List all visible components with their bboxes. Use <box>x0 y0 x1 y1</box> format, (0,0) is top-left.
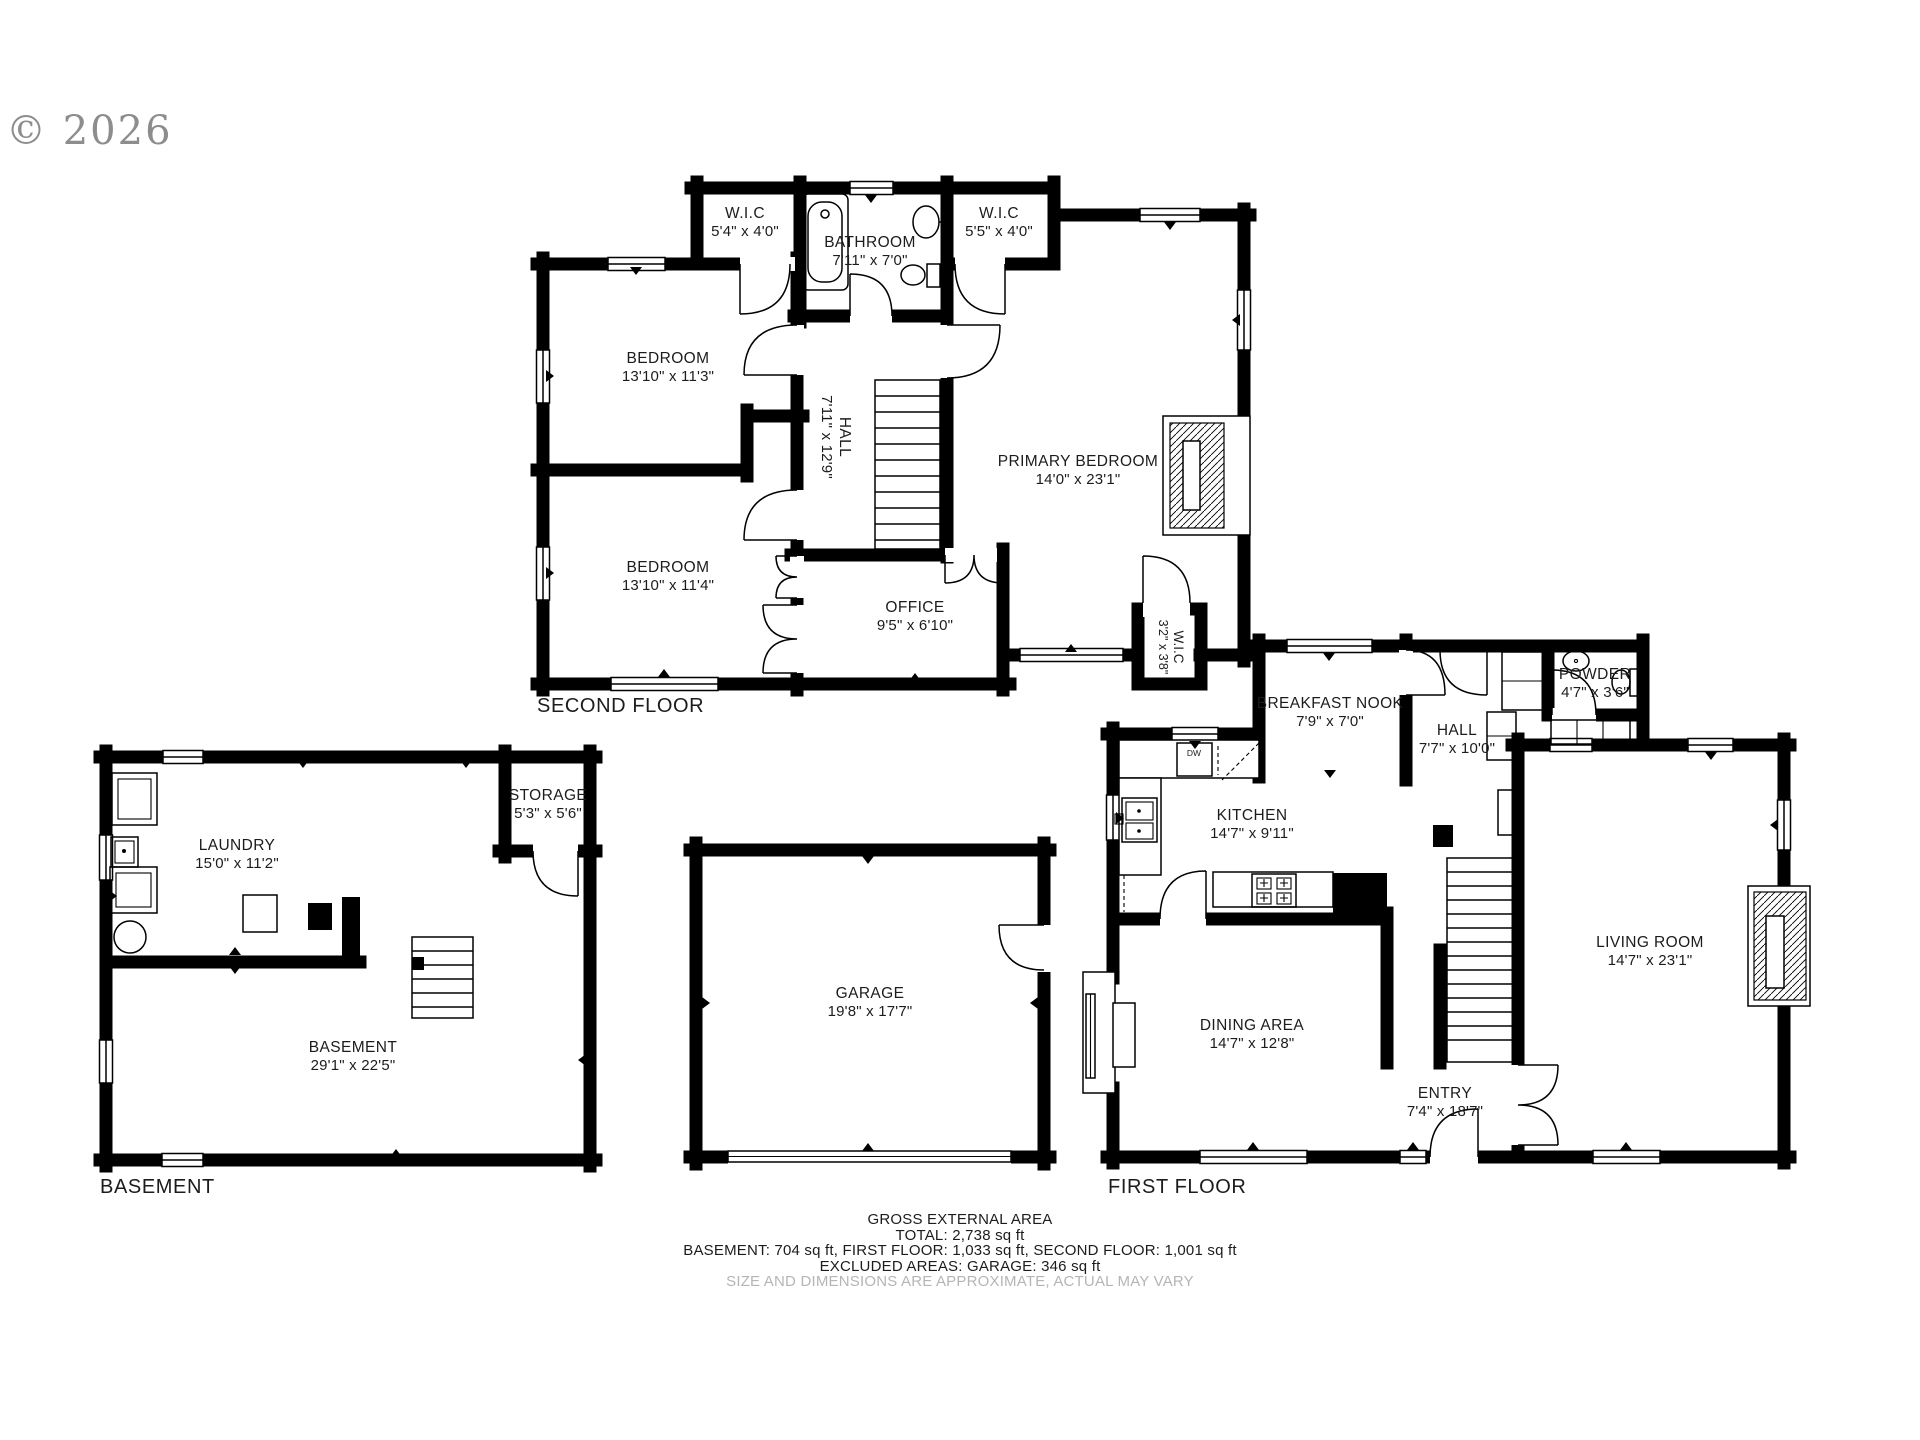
fireplace-primary-bedroom <box>1163 416 1250 535</box>
room-label-powder: POWDER <box>1559 666 1631 683</box>
room-label-wic-right: W.I.C <box>979 205 1019 222</box>
floorplan-page: © 2026 <box>0 0 1920 1440</box>
room-label-breakfast-nook: BREAKFAST NOOK <box>1257 695 1404 712</box>
room-dims-bedroom2: 13'10" x 11'4" <box>622 577 714 594</box>
room-dims-wic-right: 5'5" x 4'0" <box>965 223 1033 240</box>
room-label-living-room: LIVING ROOM <box>1596 934 1704 951</box>
room-dims-bathroom: 7'11" x 7'0" <box>832 252 907 269</box>
fireplace-living-room <box>1748 886 1810 1006</box>
room-label-basement: BASEMENT <box>309 1039 398 1056</box>
staircase-first-floor <box>1447 858 1516 1062</box>
room-dims-storage: 5'3" x 5'6" <box>514 805 582 822</box>
disclaimer: SIZE AND DIMENSIONS ARE APPROXIMATE, ACT… <box>0 1274 1920 1290</box>
room-label-wic-small: W.I.C <box>1171 631 1186 664</box>
first-floor-plan: BREAKFAST NOOK 7'9" x 7'0" HALL 7'7" x 1… <box>1083 640 1810 1199</box>
staircase-basement <box>412 937 473 1018</box>
room-dims-office: 9'5" x 6'10" <box>877 617 953 634</box>
washer-fixture <box>112 773 157 825</box>
room-label-entry: ENTRY <box>1418 1085 1472 1102</box>
room-dims-powder: 4'7" x 3'6" <box>1561 684 1629 701</box>
room-label-storage: STORAGE <box>509 787 587 804</box>
room-dims-wic-small: 3'2" x 3'8" <box>1156 620 1170 675</box>
bay-window-dining <box>1083 972 1135 1093</box>
room-label-primary-bedroom: PRIMARY BEDROOM <box>998 453 1158 470</box>
furnace-fixture <box>243 895 277 932</box>
basement-plan: LAUNDRY 15'0" x 11'2" STORAGE 5'3" x 5'6… <box>100 751 597 1199</box>
staircase-second-floor <box>875 380 940 549</box>
laundry-sink-fixture <box>111 837 138 867</box>
room-label-hall2: HALL <box>836 417 853 457</box>
room-label-laundry: LAUNDRY <box>199 837 276 854</box>
support-post <box>308 903 332 930</box>
room-label-wic-left: W.I.C <box>725 205 765 222</box>
room-label-kitchen: KITCHEN <box>1217 807 1288 824</box>
room-dims-basement: 29'1" x 22'5" <box>311 1057 396 1074</box>
room-dims-hall2: 7'11" x 12'9" <box>818 395 835 479</box>
room-label-dining-area: DINING AREA <box>1200 1017 1305 1034</box>
area-summary: GROSS EXTERNAL AREA TOTAL: 2,738 sq ft B… <box>0 1212 1920 1290</box>
floor-caption-second: SECOND FLOOR <box>537 695 704 717</box>
second-floor-plan: W.I.C 5'4" x 4'0" BATHROOM 7'11" x 7'0" … <box>537 182 1251 718</box>
room-dims-kitchen: 14'7" x 9'11" <box>1210 825 1294 842</box>
room-dims-hall1: 7'7" x 10'0" <box>1419 740 1495 757</box>
room-dims-entry: 7'4" x 18'7" <box>1407 1103 1483 1120</box>
garage-labels: GARAGE 19'8" x 17'7" <box>828 985 913 1020</box>
dishwasher-label: DW <box>1187 748 1201 758</box>
room-label-garage: GARAGE <box>836 985 905 1002</box>
room-dims-wic-left: 5'4" x 4'0" <box>711 223 779 240</box>
floor-caption-basement: BASEMENT <box>100 1176 215 1198</box>
room-label-hall1: HALL <box>1437 722 1477 739</box>
water-heater-fixture <box>114 921 146 953</box>
room-dims-living-room: 14'7" x 23'1" <box>1608 952 1693 969</box>
room-dims-laundry: 15'0" x 11'2" <box>195 855 279 872</box>
room-label-bathroom: BATHROOM <box>824 234 916 251</box>
garage-plan: GARAGE 19'8" x 17'7" <box>690 843 1051 1164</box>
room-dims-bedroom1: 13'10" x 11'3" <box>622 368 714 385</box>
room-label-bedroom1: BEDROOM <box>627 350 710 367</box>
room-dims-dining-area: 14'7" x 12'8" <box>1210 1035 1295 1052</box>
excluded-areas: EXCLUDED AREAS: GARAGE: 346 sq ft <box>0 1259 1920 1275</box>
room-dims-primary-bedroom: 14'0" x 23'1" <box>1036 471 1121 488</box>
dryer-fixture <box>110 867 157 913</box>
room-dims-breakfast-nook: 7'9" x 7'0" <box>1296 713 1364 730</box>
floor-areas: BASEMENT: 704 sq ft, FIRST FLOOR: 1,033 … <box>0 1243 1920 1259</box>
floor-caption-first: FIRST FLOOR <box>1108 1176 1246 1198</box>
second-floor-labels: W.I.C 5'4" x 4'0" BATHROOM 7'11" x 7'0" … <box>537 205 1186 717</box>
room-label-office: OFFICE <box>885 599 944 616</box>
room-dims-garage: 19'8" x 17'7" <box>828 1003 913 1020</box>
gross-area-title: GROSS EXTERNAL AREA <box>0 1212 1920 1228</box>
total-area: TOTAL: 2,738 sq ft <box>0 1228 1920 1244</box>
room-label-bedroom2: BEDROOM <box>627 559 710 576</box>
